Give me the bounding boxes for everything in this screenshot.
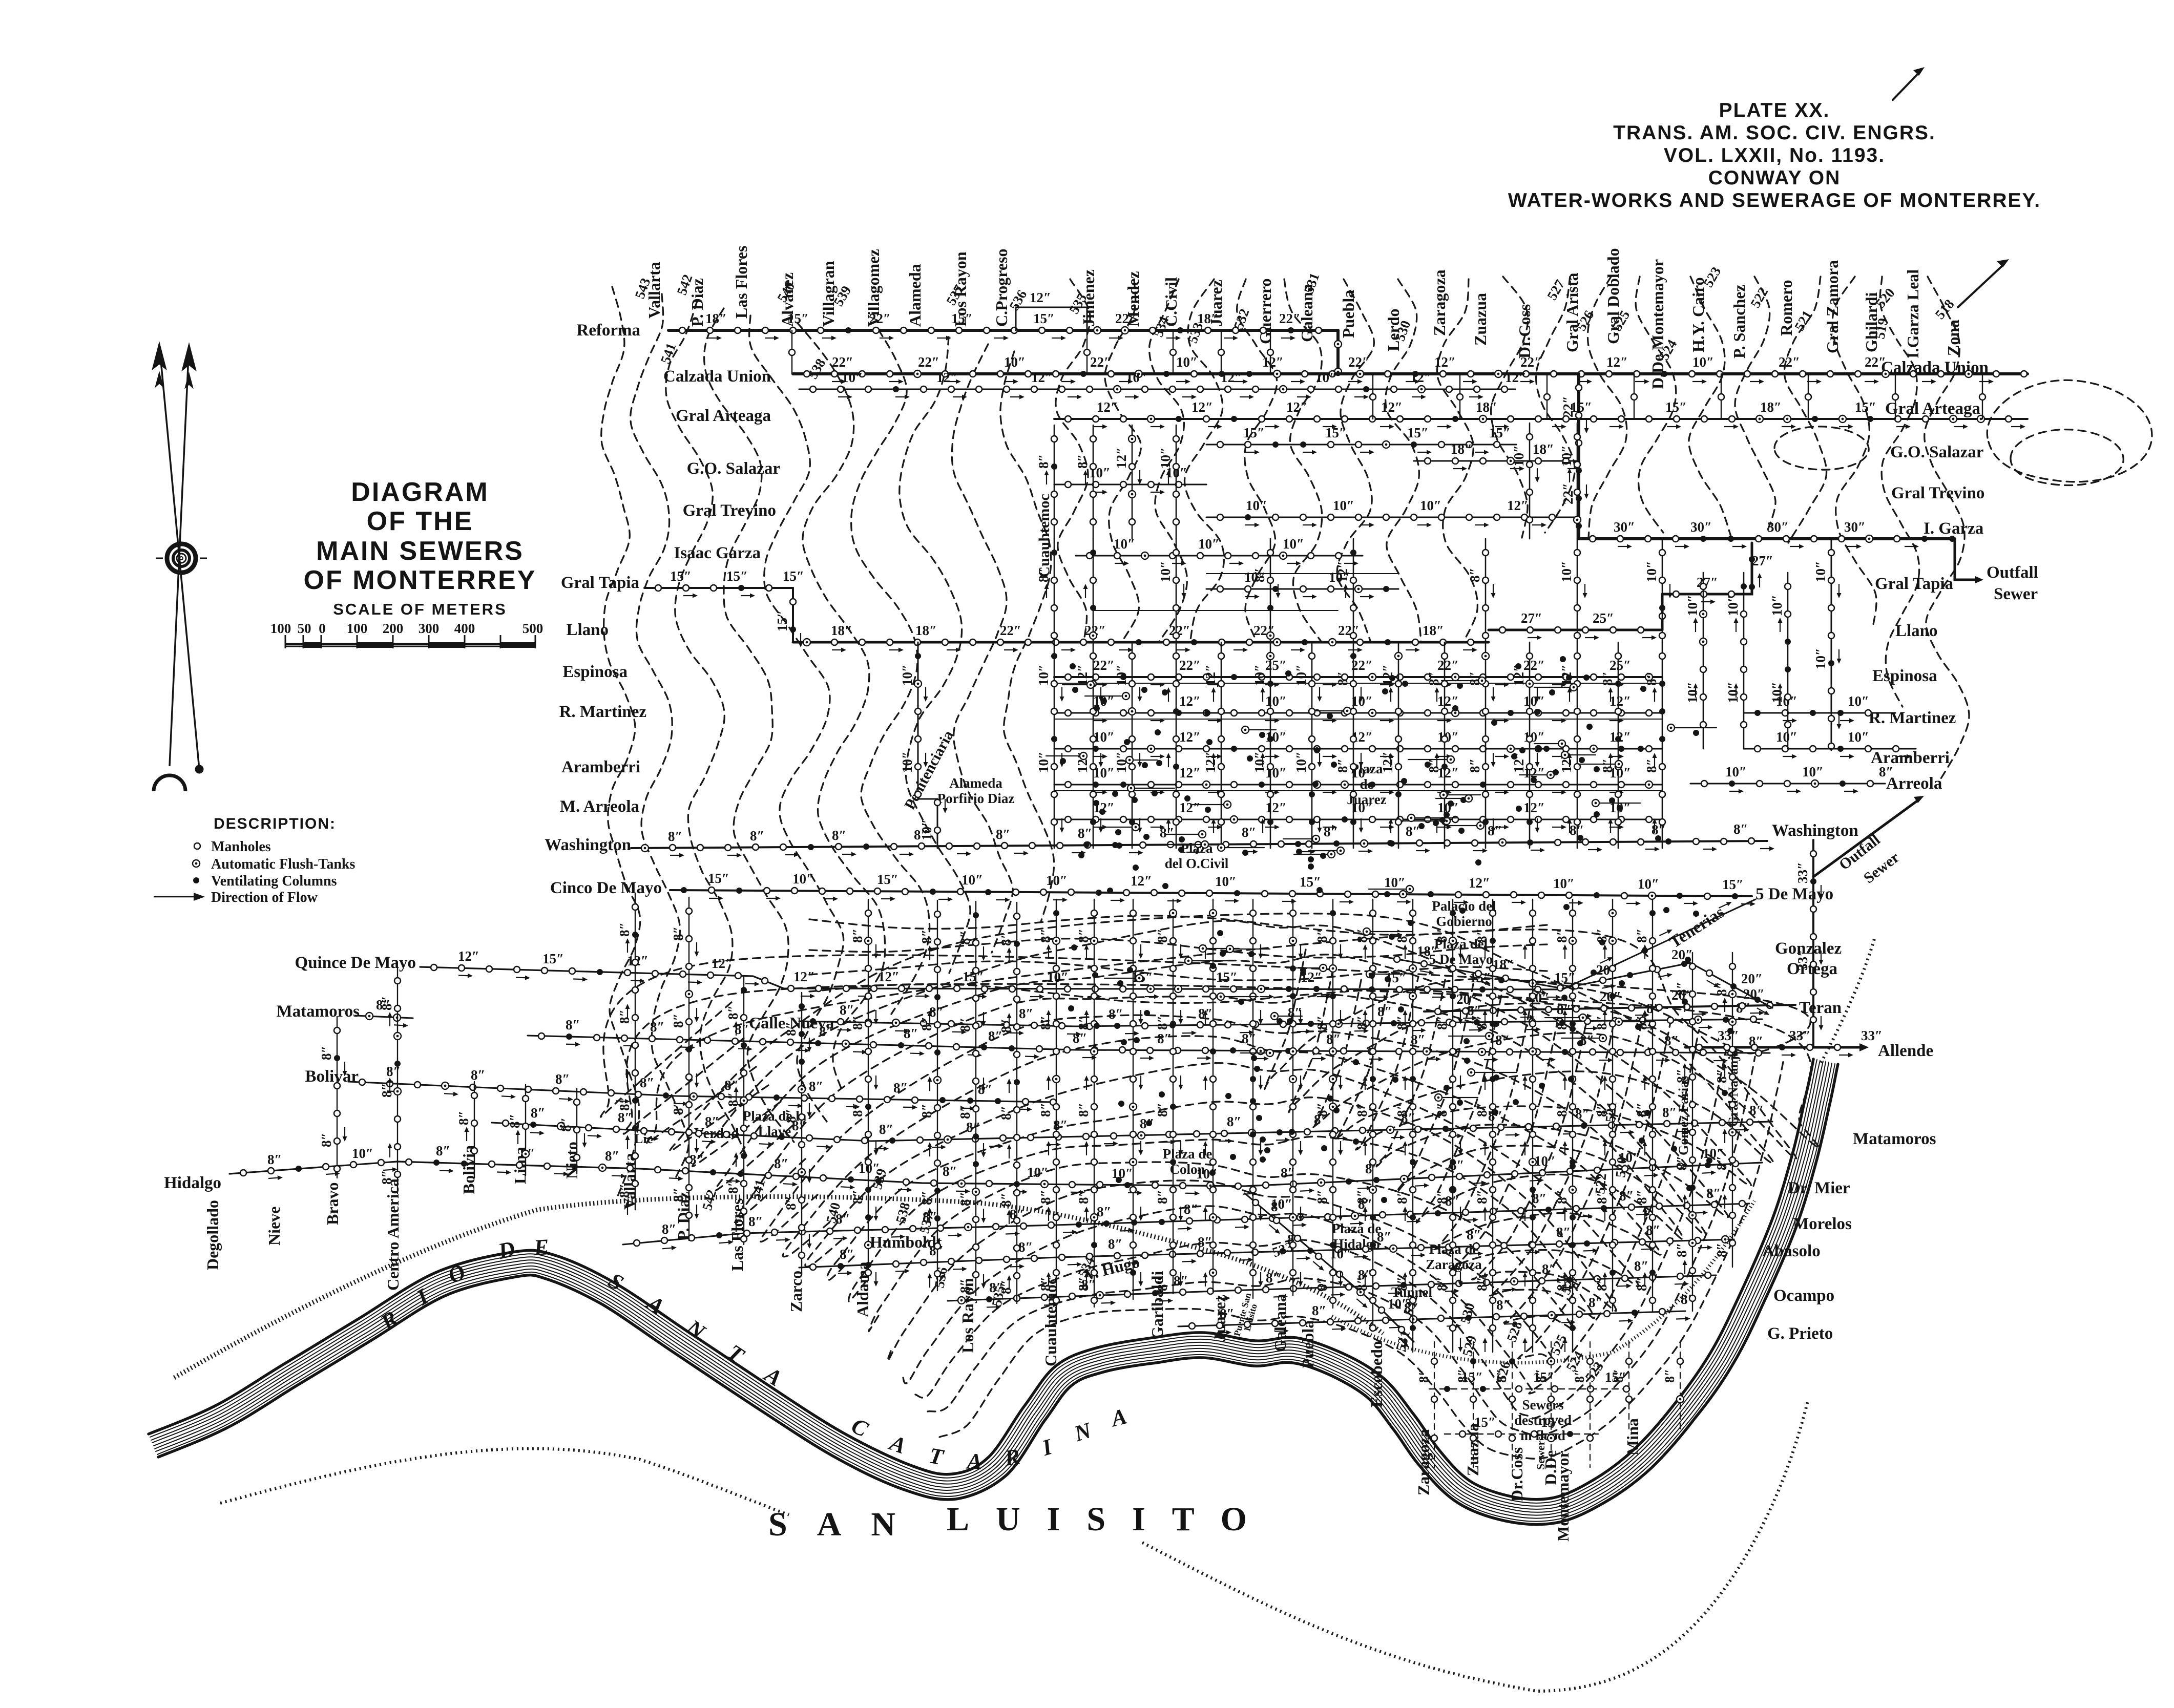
svg-text:10″: 10″: [1093, 729, 1115, 745]
svg-text:8″: 8″: [1078, 826, 1092, 841]
svg-text:10″: 10″: [900, 751, 915, 773]
svg-text:10″: 10″: [1333, 498, 1354, 513]
svg-text:8″: 8″: [1674, 1243, 1689, 1257]
svg-text:8″: 8″: [1474, 1016, 1490, 1030]
svg-text:10″: 10″: [1523, 693, 1545, 709]
svg-text:8″: 8″: [1554, 1277, 1570, 1291]
svg-text:22″: 22″: [869, 311, 891, 326]
svg-text:8″: 8″: [531, 1105, 545, 1121]
svg-text:10″: 10″: [1004, 354, 1026, 370]
svg-text:8″: 8″: [1394, 1277, 1410, 1291]
svg-text:8″: 8″: [1634, 929, 1649, 943]
svg-text:8″: 8″: [650, 1019, 664, 1035]
svg-text:20″: 20″: [1741, 971, 1763, 986]
svg-text:10″: 10″: [961, 872, 983, 888]
svg-text:8″: 8″: [379, 1170, 394, 1185]
svg-text:8″: 8″: [998, 1280, 1014, 1294]
svg-text:SAN: SAN: [768, 1506, 925, 1543]
svg-text:Jimenez: Jimenez: [1079, 269, 1098, 327]
svg-text:8″: 8″: [750, 828, 764, 844]
svg-text:Ghilardi: Ghilardi: [1862, 292, 1880, 352]
svg-text:10″: 10″: [1685, 682, 1700, 703]
svg-text:8″: 8″: [662, 1221, 676, 1237]
svg-text:22″: 22″: [1520, 354, 1542, 370]
svg-text:Bravo: Bravo: [323, 1182, 342, 1225]
svg-text:Gral Doblado: Gral Doblado: [1604, 248, 1622, 344]
svg-text:Gral Tapia: Gral Tapia: [561, 574, 639, 592]
svg-text:10″: 10″: [1725, 764, 1747, 779]
svg-text:12″: 12″: [1097, 399, 1118, 415]
svg-text:I.Garza Leal: I.Garza Leal: [1904, 269, 1922, 359]
svg-text:15″: 15″: [708, 871, 729, 886]
svg-text:8″: 8″: [1394, 1103, 1410, 1117]
svg-text:Manholes: Manholes: [211, 839, 271, 855]
svg-text:12″: 12″: [1469, 875, 1490, 891]
svg-text:G. Prieto: G. Prieto: [1767, 1324, 1833, 1343]
svg-text:Gral Trevino: Gral Trevino: [683, 501, 776, 520]
svg-text:30″: 30″: [1614, 519, 1635, 535]
svg-text:8″: 8″: [904, 1026, 918, 1041]
svg-text:Porfirio Diaz: Porfirio Diaz: [937, 791, 1015, 806]
svg-text:500: 500: [522, 621, 543, 636]
svg-text:8″: 8″: [456, 1111, 471, 1125]
svg-text:Villagran: Villagran: [819, 261, 838, 327]
svg-text:8″: 8″: [1434, 1016, 1450, 1030]
svg-text:Zaragoza: Zaragoza: [1430, 269, 1449, 336]
svg-text:12″: 12″: [936, 370, 958, 385]
svg-text:8″: 8″: [832, 828, 846, 843]
svg-text:15″: 15″: [1665, 399, 1687, 415]
svg-text:8″: 8″: [1455, 1369, 1470, 1383]
svg-text:10″: 10″: [1176, 354, 1198, 370]
svg-text:12″: 12″: [458, 948, 479, 964]
svg-text:8″: 8″: [1377, 1004, 1392, 1019]
svg-text:8″: 8″: [840, 1002, 854, 1018]
svg-text:30″: 30″: [1690, 519, 1712, 535]
svg-text:15″: 15″: [1489, 425, 1511, 440]
svg-text:30″: 30″: [1844, 519, 1866, 535]
svg-text:8″: 8″: [998, 1193, 1014, 1207]
svg-text:A: A: [965, 1448, 983, 1474]
svg-text:Espinosa: Espinosa: [562, 663, 628, 681]
svg-text:22″: 22″: [1000, 623, 1021, 638]
svg-text:8″: 8″: [379, 996, 394, 1010]
svg-text:8″: 8″: [1644, 758, 1659, 773]
svg-text:25″: 25″: [1609, 658, 1631, 673]
svg-text:15″: 15″: [1033, 311, 1055, 326]
svg-text:8″: 8″: [957, 1279, 973, 1293]
svg-text:12″: 12″: [1179, 765, 1201, 781]
svg-text:10″: 10″: [1559, 445, 1574, 467]
svg-text:10″: 10″: [1848, 729, 1869, 745]
svg-text:10″: 10″: [1388, 1296, 1409, 1312]
svg-text:8″: 8″: [1714, 982, 1729, 996]
svg-text:33″: 33″: [1795, 862, 1810, 883]
svg-text:10″: 10″: [842, 370, 863, 385]
svg-text:8″: 8″: [319, 1133, 334, 1147]
svg-text:8″: 8″: [957, 1105, 973, 1119]
svg-text:Matamoros: Matamoros: [276, 1002, 360, 1021]
svg-text:10″: 10″: [1215, 874, 1237, 889]
svg-text:12″: 12″: [1131, 873, 1152, 889]
svg-text:22″: 22″: [1179, 658, 1201, 673]
svg-text:8″: 8″: [725, 1179, 741, 1194]
svg-text:8″: 8″: [1554, 1190, 1570, 1204]
svg-text:8″: 8″: [1714, 1069, 1729, 1083]
svg-text:Sewers: Sewers: [1522, 1397, 1564, 1412]
svg-text:Hidalgo: Hidalgo: [164, 1174, 221, 1192]
svg-text:8″: 8″: [1266, 1270, 1280, 1285]
svg-text:8″: 8″: [1474, 929, 1490, 943]
svg-text:8″: 8″: [379, 1083, 394, 1098]
svg-text:Cuauhtemoc: Cuauhtemoc: [1036, 494, 1053, 577]
svg-text:Zuazua: Zuazua: [1471, 293, 1490, 346]
svg-text:10″: 10″: [1036, 664, 1051, 686]
svg-text:10″: 10″: [1158, 447, 1173, 469]
svg-text:12″: 12″: [793, 969, 815, 984]
svg-text:15″: 15″: [1407, 425, 1429, 440]
svg-text:Outfall: Outfall: [1987, 563, 2038, 582]
svg-text:Calzada Union: Calzada Union: [663, 367, 771, 386]
svg-text:8″: 8″: [1542, 1261, 1556, 1277]
svg-text:8″: 8″: [705, 1114, 719, 1129]
svg-text:8″: 8″: [507, 1114, 522, 1128]
svg-text:10″: 10″: [919, 819, 934, 840]
svg-text:10″: 10″: [1198, 536, 1220, 552]
svg-text:10″: 10″: [1813, 561, 1828, 582]
svg-text:18″: 18″: [1760, 399, 1782, 415]
svg-text:8″: 8″: [1354, 1277, 1370, 1291]
svg-text:8″: 8″: [893, 1080, 908, 1095]
svg-text:8″: 8″: [1600, 758, 1615, 773]
svg-text:Reforma: Reforma: [576, 321, 640, 340]
svg-text:8″: 8″: [850, 1103, 865, 1117]
svg-text:10″: 10″: [1437, 729, 1459, 745]
svg-text:8″: 8″: [1394, 1190, 1410, 1204]
svg-text:Guerrero: Guerrero: [1256, 278, 1274, 344]
svg-text:Montemayor: Montemayor: [1554, 1450, 1572, 1542]
svg-text:0: 0: [319, 621, 326, 636]
svg-text:8″: 8″: [671, 1188, 686, 1202]
svg-text:22″: 22″: [1560, 396, 1576, 417]
svg-text:Gobierno: Gobierno: [1436, 914, 1492, 929]
svg-text:10″: 10″: [1644, 561, 1659, 582]
svg-text:OF THE: OF THE: [367, 507, 474, 536]
svg-text:15″: 15″: [787, 311, 809, 326]
svg-text:8″: 8″: [1572, 1369, 1587, 1383]
svg-text:8″: 8″: [1474, 1190, 1490, 1204]
svg-text:10″: 10″: [1559, 561, 1574, 582]
svg-text:18″: 18″: [1417, 943, 1438, 959]
svg-text:Gral Arteaga: Gral Arteaga: [676, 407, 771, 425]
svg-text:8″: 8″: [668, 829, 682, 844]
svg-text:8″: 8″: [1467, 568, 1482, 582]
svg-text:10″: 10″: [1769, 595, 1785, 616]
svg-text:8″: 8″: [1662, 1105, 1677, 1120]
svg-text:8″: 8″: [1377, 1229, 1391, 1245]
svg-text:8″: 8″: [1075, 454, 1090, 469]
svg-text:18″: 18″: [915, 623, 937, 638]
svg-text:8″: 8″: [957, 1018, 973, 1032]
svg-text:8″: 8″: [1354, 1103, 1370, 1117]
svg-text:Dr.Coss: Dr.Coss: [1508, 1447, 1526, 1502]
svg-text:8″: 8″: [850, 929, 865, 943]
svg-text:Gral Arista: Gral Arista: [1563, 272, 1581, 352]
svg-text:12″: 12″: [1031, 370, 1053, 385]
svg-text:8″: 8″: [1076, 1103, 1091, 1117]
svg-text:8″: 8″: [1588, 1295, 1603, 1310]
svg-text:10″: 10″: [1293, 664, 1309, 686]
svg-text:8″: 8″: [1242, 825, 1256, 840]
svg-text:8″: 8″: [1594, 1016, 1609, 1030]
svg-text:8″: 8″: [879, 1122, 893, 1137]
svg-text:8″: 8″: [1018, 1239, 1033, 1255]
svg-text:12″: 12″: [1507, 498, 1529, 513]
svg-text:SCALE OF METERS: SCALE OF METERS: [333, 600, 507, 618]
svg-text:Gral Tapia: Gral Tapia: [1875, 575, 1953, 593]
svg-text:25″: 25″: [1265, 658, 1287, 673]
svg-text:8″: 8″: [1326, 1031, 1341, 1047]
svg-text:15″: 15″: [1243, 425, 1265, 440]
svg-text:20″: 20″: [1456, 992, 1478, 1007]
svg-text:8″: 8″: [617, 1009, 632, 1024]
svg-text:Dr.Coss: Dr.Coss: [1515, 304, 1534, 359]
svg-text:8″: 8″: [1155, 1277, 1170, 1291]
svg-text:100: 100: [347, 621, 368, 636]
svg-text:10″: 10″: [1848, 693, 1869, 709]
svg-text:8″: 8″: [1354, 1016, 1370, 1030]
svg-text:C.Progreso: C.Progreso: [992, 248, 1011, 327]
svg-text:8″: 8″: [1474, 1103, 1490, 1117]
svg-text:8″: 8″: [1488, 823, 1502, 838]
svg-text:10″: 10″: [1283, 536, 1304, 552]
svg-text:Gral Zamora: Gral Zamora: [1823, 260, 1842, 353]
svg-text:8″: 8″: [1076, 929, 1091, 943]
svg-text:10″: 10″: [1126, 370, 1147, 385]
svg-text:10″: 10″: [1813, 648, 1828, 669]
svg-text:12″: 12″: [1380, 751, 1395, 773]
svg-text:8″: 8″: [809, 1079, 823, 1094]
svg-text:D.De Montemayor: D.De Montemayor: [1648, 259, 1667, 389]
svg-text:Alameda: Alameda: [906, 264, 924, 327]
svg-text:Puebla: Puebla: [1299, 1320, 1317, 1368]
svg-text:12″: 12″: [1380, 664, 1395, 686]
svg-text:in flood: in flood: [1520, 1428, 1565, 1443]
svg-text:8″: 8″: [1600, 671, 1615, 686]
svg-text:C.Civil: C.Civil: [1162, 277, 1180, 327]
svg-text:8″: 8″: [1038, 1190, 1053, 1204]
svg-text:8″: 8″: [1314, 1103, 1330, 1117]
svg-text:10″: 10″: [1315, 370, 1337, 385]
svg-text:8″: 8″: [555, 1071, 570, 1087]
svg-text:27″: 27″: [1521, 610, 1542, 626]
svg-text:8″: 8″: [471, 1067, 485, 1083]
svg-text:10″: 10″: [1776, 729, 1797, 745]
svg-text:8″: 8″: [1157, 1031, 1172, 1046]
svg-text:12″: 12″: [1179, 800, 1201, 815]
svg-text:Plaza de: Plaza de: [1163, 1146, 1213, 1162]
svg-text:Aramberri: Aramberri: [561, 758, 640, 776]
svg-text:12″: 12″: [1559, 664, 1574, 686]
svg-text:8″: 8″: [1594, 1103, 1609, 1117]
svg-text:G.O. Salazar: G.O. Salazar: [1890, 443, 1983, 461]
svg-text:15″: 15″: [1722, 877, 1744, 892]
svg-text:12″: 12″: [1505, 370, 1527, 385]
svg-text:8″: 8″: [640, 1075, 654, 1090]
svg-text:8″: 8″: [1554, 1103, 1570, 1117]
svg-text:10″: 10″: [792, 871, 814, 887]
svg-text:Zarco: Zarco: [787, 1271, 805, 1312]
svg-text:Nieve: Nieve: [265, 1207, 283, 1246]
svg-text:8″: 8″: [774, 1156, 788, 1171]
svg-text:10″: 10″: [1036, 751, 1051, 773]
svg-text:8″: 8″: [1354, 1190, 1370, 1204]
svg-text:18″: 18″: [1533, 441, 1554, 457]
svg-text:Gral Arteaga: Gral Arteaga: [1885, 399, 1980, 418]
svg-text:10″: 10″: [1158, 561, 1173, 582]
svg-text:10″: 10″: [1384, 875, 1406, 890]
svg-text:Puebla: Puebla: [1339, 290, 1357, 338]
svg-text:8″: 8″: [957, 931, 973, 945]
svg-text:8″: 8″: [1019, 1006, 1033, 1021]
svg-text:33″: 33″: [1861, 1028, 1883, 1043]
svg-text:8″: 8″: [617, 1184, 632, 1198]
svg-text:G.O. Salazar: G.O. Salazar: [687, 459, 780, 478]
svg-text:Cinco De Mayo: Cinco De Mayo: [550, 879, 662, 897]
svg-text:8″: 8″: [919, 930, 934, 944]
svg-text:Gral Naranjo: Gral Naranjo: [1726, 1049, 1741, 1127]
svg-text:Washington: Washington: [1772, 821, 1858, 840]
svg-text:10″: 10″: [1802, 764, 1824, 779]
svg-text:12″: 12″: [1203, 664, 1218, 686]
svg-text:15″: 15″: [726, 568, 748, 584]
svg-text:M. Arreola: M. Arreola: [560, 797, 639, 816]
svg-text:15″: 15″: [1300, 874, 1321, 890]
svg-text:12″: 12″: [1335, 561, 1350, 582]
svg-text:200: 200: [383, 621, 404, 636]
svg-text:OF MONTERREY: OF MONTERREY: [304, 565, 537, 595]
svg-text:10″: 10″: [1114, 664, 1129, 686]
svg-text:Llano: Llano: [1895, 622, 1938, 640]
svg-text:10″: 10″: [1246, 498, 1267, 513]
svg-text:I. Garza: I. Garza: [1924, 519, 1983, 538]
svg-text:15″: 15″: [877, 872, 898, 887]
svg-text:10″: 10″: [1725, 595, 1741, 616]
svg-text:8″: 8″: [1036, 454, 1051, 469]
svg-text:8″: 8″: [1038, 1016, 1053, 1030]
svg-text:8″: 8″: [1714, 1243, 1729, 1257]
svg-text:Matamoros: Matamoros: [1853, 1130, 1936, 1148]
svg-text:8″: 8″: [850, 1190, 865, 1204]
svg-text:8″: 8″: [1073, 1030, 1087, 1046]
svg-text:33″: 33″: [1795, 949, 1810, 971]
svg-text:8″: 8″: [919, 1104, 934, 1118]
svg-text:Arreola: Arreola: [1886, 774, 1942, 793]
svg-text:8″: 8″: [1434, 1190, 1450, 1204]
svg-text:8″: 8″: [1416, 1369, 1431, 1383]
svg-text:27″: 27″: [1752, 553, 1773, 568]
svg-text:18″: 18″: [1197, 311, 1219, 326]
svg-text:10″: 10″: [352, 1146, 373, 1161]
svg-text:Mina: Mina: [1623, 1418, 1642, 1456]
svg-text:8″: 8″: [1494, 1369, 1509, 1383]
svg-text:8″: 8″: [1674, 1069, 1689, 1083]
svg-text:22″: 22″: [1865, 354, 1886, 370]
svg-text:15″: 15″: [1474, 1415, 1496, 1430]
svg-text:22″: 22″: [1093, 658, 1115, 673]
svg-text:MAIN SEWERS: MAIN SEWERS: [316, 536, 524, 566]
svg-text:8″: 8″: [1467, 758, 1482, 773]
svg-text:8″: 8″: [998, 1106, 1014, 1120]
svg-text:33″: 33″: [1789, 1028, 1811, 1043]
svg-text:15″: 15″: [1325, 425, 1347, 440]
svg-text:8″: 8″: [840, 1247, 854, 1262]
svg-text:15″: 15″: [783, 568, 804, 584]
svg-text:WATER-WORKS AND SEWERAGE OF MO: WATER-WORKS AND SEWERAGE OF MONTERREY.: [1508, 189, 2041, 212]
svg-text:8″: 8″: [1434, 1277, 1450, 1291]
svg-text:8″: 8″: [1155, 1190, 1170, 1204]
svg-text:10″: 10″: [1692, 354, 1714, 370]
svg-text:8″: 8″: [1108, 1236, 1122, 1252]
svg-text:8″: 8″: [1314, 1190, 1330, 1204]
svg-text:8″: 8″: [1749, 1103, 1764, 1118]
svg-text:15″: 15″: [1216, 969, 1238, 985]
svg-text:8″: 8″: [1674, 982, 1689, 996]
svg-text:Degollado: Degollado: [203, 1200, 222, 1270]
svg-text:50: 50: [298, 621, 311, 636]
svg-text:8″: 8″: [1335, 671, 1350, 686]
svg-text:Llano: Llano: [566, 621, 609, 639]
svg-text:Zaragoza: Zaragoza: [1414, 1429, 1433, 1495]
svg-text:DIAGRAM: DIAGRAM: [351, 477, 489, 507]
svg-text:8″: 8″: [1252, 568, 1267, 582]
svg-text:12″: 12″: [1606, 354, 1628, 370]
svg-text:8″: 8″: [566, 1017, 580, 1032]
svg-text:8″: 8″: [1314, 1016, 1330, 1030]
svg-text:8″: 8″: [1097, 1204, 1111, 1219]
svg-text:8″: 8″: [1496, 1297, 1511, 1313]
svg-text:VOL. LXXII, No. 1193.: VOL. LXXII, No. 1193.: [1664, 144, 1885, 166]
svg-text:8″: 8″: [1467, 1227, 1481, 1242]
svg-text:12″: 12″: [1191, 399, 1213, 415]
svg-text:8″: 8″: [671, 926, 686, 941]
svg-text:10″: 10″: [1420, 498, 1441, 513]
svg-text:8″: 8″: [1434, 1103, 1450, 1117]
svg-text:Zona: Zona: [1944, 320, 1962, 356]
svg-text:8″: 8″: [919, 1017, 934, 1031]
svg-text:8″: 8″: [1335, 758, 1350, 773]
svg-text:15″: 15″: [542, 951, 564, 966]
svg-text:8″: 8″: [1733, 821, 1748, 837]
svg-text:8″: 8″: [1160, 825, 1174, 840]
svg-text:22″: 22″: [1279, 311, 1301, 326]
svg-text:Teran: Teran: [1799, 999, 1842, 1017]
svg-text:8″: 8″: [267, 1152, 282, 1167]
svg-text:R. Martinez: R. Martinez: [1869, 709, 1956, 727]
svg-text:12″: 12″: [1410, 370, 1432, 385]
svg-text:12″: 12″: [1523, 800, 1545, 815]
svg-text:8″: 8″: [996, 827, 1010, 842]
svg-text:8″: 8″: [1198, 1234, 1212, 1250]
svg-text:8″: 8″: [1227, 1114, 1241, 1129]
svg-text:8″: 8″: [1594, 1277, 1609, 1291]
svg-text:8″: 8″: [1314, 1277, 1330, 1291]
svg-text:DESCRIPTION:: DESCRIPTION:: [214, 815, 336, 832]
svg-text:8″: 8″: [617, 1097, 632, 1111]
svg-text:8″: 8″: [1674, 1156, 1689, 1170]
svg-text:Isaac Garza: Isaac Garza: [674, 544, 761, 562]
svg-text:8″: 8″: [1312, 1303, 1326, 1318]
